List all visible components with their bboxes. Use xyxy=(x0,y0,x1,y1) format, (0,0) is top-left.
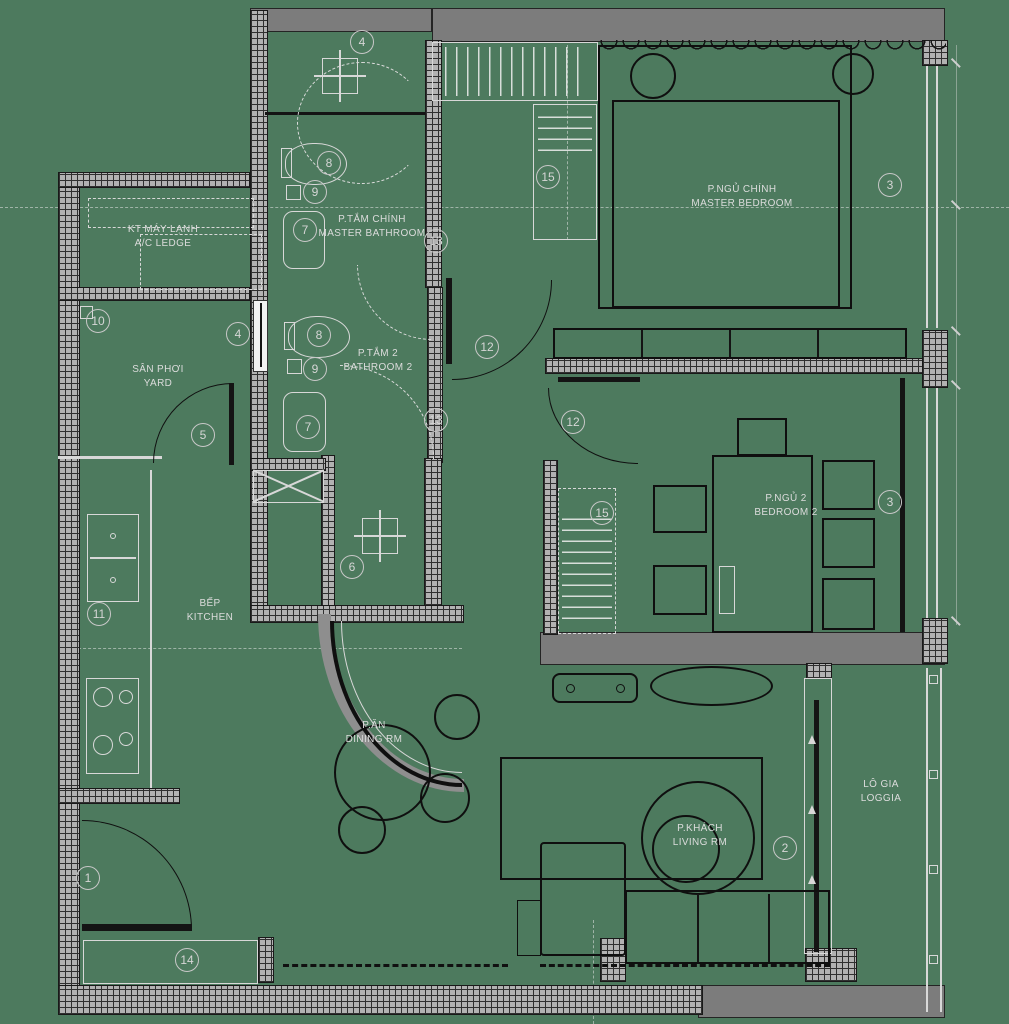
window-pier-mid xyxy=(922,330,948,388)
room-label-loggia: LÔ GIA LOGGIA xyxy=(861,777,902,805)
wall-hall-bedroom2 xyxy=(543,460,558,635)
keynote-marker-7: 7 xyxy=(293,218,317,242)
bedroom2-cabinet xyxy=(822,578,875,630)
room-label-master-bedroom: P.NGỦ CHÍNH MASTER BEDROOM xyxy=(691,182,792,210)
room-name-en: YARD xyxy=(132,376,184,390)
pillow xyxy=(832,53,874,95)
keynote-marker-12: 12 xyxy=(475,335,499,359)
railing-post xyxy=(929,770,938,779)
room-name-vi: BẾP xyxy=(187,596,233,610)
room-label-bedroom2: P.NGỦ 2 BEDROOM 2 xyxy=(754,491,817,519)
room-label-ac-ledge: KT MÁY LẠNH A/C LEDGE xyxy=(128,222,198,250)
sink-drain xyxy=(110,577,116,583)
room-label-kitchen: BẾP KITCHEN xyxy=(187,596,233,624)
railing-post xyxy=(929,675,938,684)
wardrobe-hangers xyxy=(562,509,612,619)
keynote-marker-11: 11 xyxy=(87,602,111,626)
loggia-railing xyxy=(926,668,928,1012)
room-name-en: BEDROOM 2 xyxy=(754,505,817,519)
wall-ledge-top xyxy=(58,172,250,188)
window-glazing-bedroom2 xyxy=(936,388,938,618)
room-name-en: KITCHEN xyxy=(187,610,233,624)
slide-arrow-icon xyxy=(808,805,816,814)
keynote-marker-14: 14 xyxy=(175,948,199,972)
burner xyxy=(93,735,113,755)
room-name-en: LOGGIA xyxy=(861,791,902,805)
railing-post xyxy=(929,865,938,874)
dresser-divider xyxy=(641,330,643,357)
shower-cross xyxy=(314,75,366,77)
yard-bottom-wall xyxy=(58,456,162,459)
keynote-marker-3: 3 xyxy=(878,173,902,197)
burner xyxy=(119,732,133,746)
keynote-marker-7: 7 xyxy=(296,415,320,439)
room-name-en: LIVING RM xyxy=(673,835,727,849)
room-name-vi: P.KHÁCH xyxy=(673,821,727,835)
burner xyxy=(119,690,133,704)
room-name-vi: P.NGỦ CHÍNH xyxy=(691,182,792,196)
room-name-vi: P.TẮM CHÍNH xyxy=(319,212,426,226)
bench-knob xyxy=(566,684,575,693)
master-wardrobe-top xyxy=(432,42,598,101)
slide-arrow-icon xyxy=(808,735,816,744)
room-label-master-bathroom: P.TẮM CHÍNH MASTER BATHROOM xyxy=(319,212,426,240)
wardrobe-hangers xyxy=(445,47,585,96)
keynote-marker-9: 9 xyxy=(303,357,327,381)
keynote-marker-6: 6 xyxy=(340,555,364,579)
room-name-vi: LÔ GIA xyxy=(861,777,902,791)
window-glazing-master xyxy=(936,66,938,328)
bathroom2-door-swing xyxy=(340,365,434,459)
window-glazing-master xyxy=(926,66,928,328)
keynote-marker-9: 9 xyxy=(303,180,327,204)
keynote-marker-8: 8 xyxy=(307,323,331,347)
shower-cross xyxy=(354,535,406,537)
sofa-back-dashed xyxy=(540,964,830,967)
room-name-en: A/C LEDGE xyxy=(128,236,198,250)
wall-mid-horizontal xyxy=(540,632,945,665)
room-name-en: DINING RM xyxy=(346,732,403,746)
dining-stool xyxy=(434,694,480,740)
cooktop xyxy=(86,678,139,774)
bedside-runner xyxy=(719,566,735,614)
room-name-en: MASTER BATHROOM xyxy=(319,226,426,240)
nightstand xyxy=(653,565,707,615)
keynote-marker-12: 12 xyxy=(561,410,585,434)
sink-divider xyxy=(90,557,136,559)
sofa-cushion-divider xyxy=(697,894,699,962)
nightstand xyxy=(653,485,707,533)
yard-door-swing xyxy=(153,383,233,463)
keynote-marker-13: 13 xyxy=(424,408,448,432)
slide-arrow-icon xyxy=(808,875,816,884)
wall-top-right xyxy=(432,8,945,42)
sofa-chaise xyxy=(540,842,626,956)
keynote-marker-3: 3 xyxy=(878,490,902,514)
room-name-vi: P.ĂN xyxy=(346,718,403,732)
dimension-line xyxy=(956,45,957,625)
bedroom2-pillow xyxy=(737,418,787,456)
toilet-tank xyxy=(281,148,292,178)
room-name-vi: P.TẮM 2 xyxy=(343,346,412,360)
window-pier-low xyxy=(922,618,948,664)
keynote-marker-1: 1 xyxy=(76,866,100,890)
keynote-marker-13: 13 xyxy=(424,229,448,253)
window-mullion xyxy=(260,303,262,367)
keynote-marker-4: 4 xyxy=(350,30,374,54)
wall-shower2-right xyxy=(424,458,442,618)
entry-door-leaf xyxy=(82,924,192,931)
wall-exterior-bottom xyxy=(58,985,703,1015)
yard-door-leaf xyxy=(229,383,234,465)
keynote-marker-15: 15 xyxy=(536,165,560,189)
wall-bottom-right xyxy=(698,985,945,1018)
wall-entry-pier xyxy=(258,937,274,983)
masterbath-door-swing xyxy=(357,265,432,340)
room-name-vi: KT MÁY LẠNH xyxy=(128,222,198,236)
room-name-vi: SÂN PHƠI xyxy=(132,362,184,376)
kitchen-sink xyxy=(87,514,139,602)
room-name-en: BATHROOM 2 xyxy=(343,360,412,374)
room-label-yard: SÂN PHƠI YARD xyxy=(132,362,184,390)
bedroom2-door-leaf xyxy=(558,377,640,382)
dresser-divider xyxy=(817,330,819,357)
wall-over-dashed xyxy=(283,964,508,967)
sofa-seats xyxy=(625,890,830,964)
wall-bedroom-corridor xyxy=(545,358,943,374)
console-oval xyxy=(650,666,773,706)
loggia-railing xyxy=(940,668,942,1012)
wardrobe-shelves xyxy=(538,109,592,151)
toilet-tank xyxy=(284,322,295,350)
yard-sliding-window xyxy=(253,300,268,372)
dining-stool xyxy=(338,806,386,854)
floor-plan: P.NGỦ CHÍNH MASTER BEDROOM P.TẮM CHÍNH M… xyxy=(0,0,1009,1024)
floor-drain xyxy=(286,185,301,200)
wall-top-left xyxy=(250,8,432,32)
room-label-living: P.KHÁCH LIVING RM xyxy=(673,821,727,849)
room-label-dining: P.ĂN DINING RM xyxy=(346,718,403,746)
keynote-marker-8: 8 xyxy=(317,151,341,175)
bedroom2-cabinet xyxy=(822,460,875,510)
keynote-marker-15: 15 xyxy=(590,501,614,525)
keynote-marker-2: 2 xyxy=(773,836,797,860)
master-bedroom-door-swing xyxy=(452,280,552,380)
shoe-cabinet xyxy=(83,940,258,984)
pillow xyxy=(630,53,676,99)
room-label-bathroom2: P.TẮM 2 BATHROOM 2 xyxy=(343,346,412,374)
keynote-marker-5: 5 xyxy=(191,423,215,447)
sofa-side-table xyxy=(517,900,541,956)
room-name-vi: P.NGỦ 2 xyxy=(754,491,817,505)
kitchen-counter-edge xyxy=(150,470,152,788)
railing-post xyxy=(929,955,938,964)
dresser-divider xyxy=(729,330,731,357)
master-bedroom-door-leaf xyxy=(446,278,452,364)
burner xyxy=(93,687,113,707)
window-glazing-bedroom2 xyxy=(926,388,928,618)
keynote-marker-10: 10 xyxy=(86,309,110,333)
floor-drain xyxy=(287,359,302,374)
loggia-pier-top xyxy=(806,663,832,679)
sofa-cushion-divider xyxy=(768,894,770,962)
keynote-marker-4: 4 xyxy=(226,322,250,346)
dining-stool xyxy=(420,773,470,823)
bench-knob xyxy=(616,684,625,693)
bedroom2-cabinet xyxy=(822,518,875,568)
tv-bench xyxy=(552,673,638,703)
wall-kitchen-entry xyxy=(58,788,180,804)
sink-drain xyxy=(110,533,116,539)
room-name-en: MASTER BEDROOM xyxy=(691,196,792,210)
